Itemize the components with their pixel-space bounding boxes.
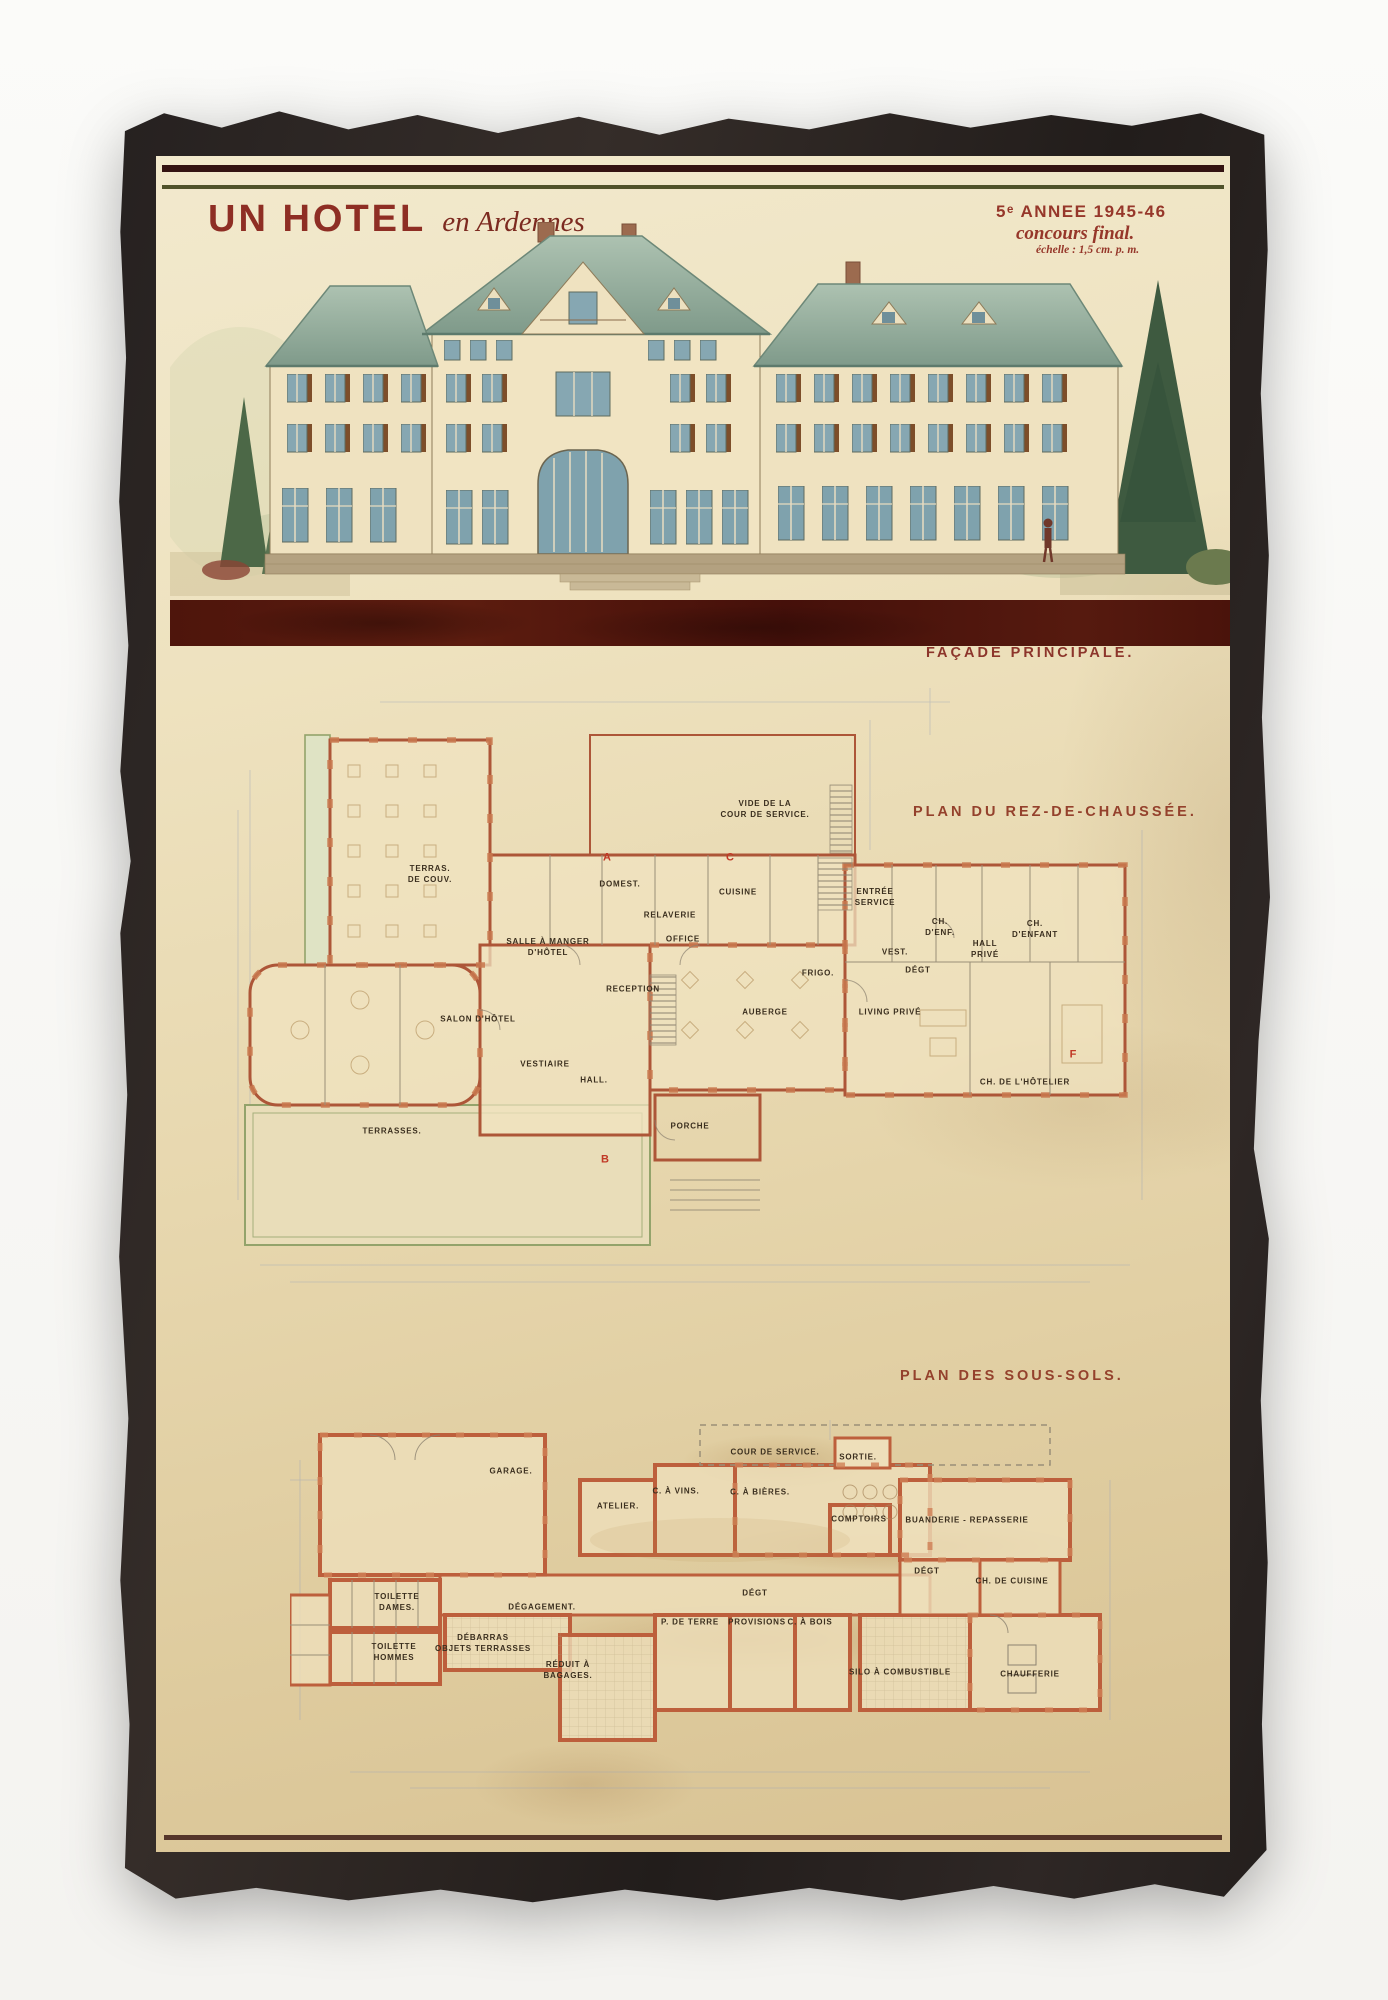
photo-background: UN HOTELen Ardennes 5ᵉ ANNEE 1945-46 con… (0, 0, 1388, 2000)
poster-black-frame: UN HOTELen Ardennes 5ᵉ ANNEE 1945-46 con… (118, 106, 1270, 1904)
poster-paper: UN HOTELen Ardennes 5ᵉ ANNEE 1945-46 con… (156, 156, 1230, 1852)
ground-floor-plan-caption: PLAN DU REZ-DE-CHAUSSÉE. (913, 804, 1197, 820)
stamp-year: 5ᵉ ANNEE 1945-46 (996, 202, 1236, 222)
facade-illustration (170, 222, 1230, 600)
facade-caption: FAÇADE PRINCIPALE. (926, 645, 1134, 661)
basement-plan-caption: PLAN DES SOUS-SOLS. (900, 1368, 1124, 1384)
ground-floor-plan-drawing (230, 680, 1160, 1310)
inner-frame-rule-top (162, 165, 1224, 189)
inner-frame-rule-bottom (164, 1835, 1222, 1840)
basement-plan-drawing (290, 1420, 1140, 1800)
poster: UN HOTELen Ardennes 5ᵉ ANNEE 1945-46 con… (118, 106, 1270, 1904)
facade-ground-band (170, 600, 1230, 646)
